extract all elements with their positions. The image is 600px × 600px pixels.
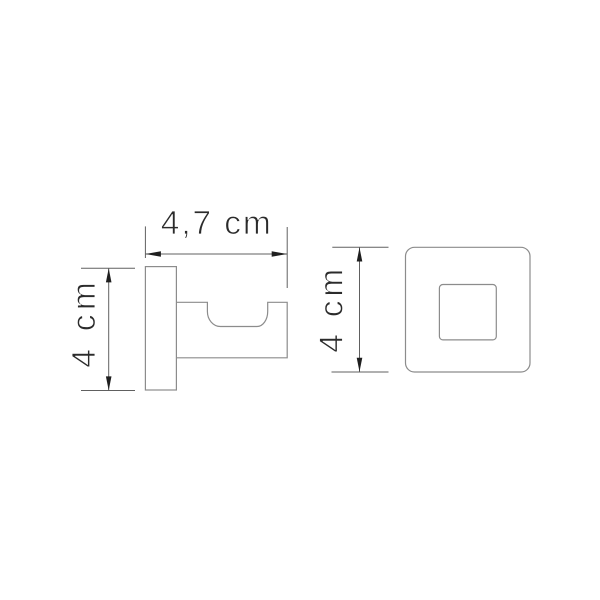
svg-text:4,7 cm: 4,7 cm (161, 205, 271, 242)
svg-text:4 cm: 4 cm (314, 269, 351, 353)
svg-text:4 cm: 4 cm (66, 282, 103, 368)
